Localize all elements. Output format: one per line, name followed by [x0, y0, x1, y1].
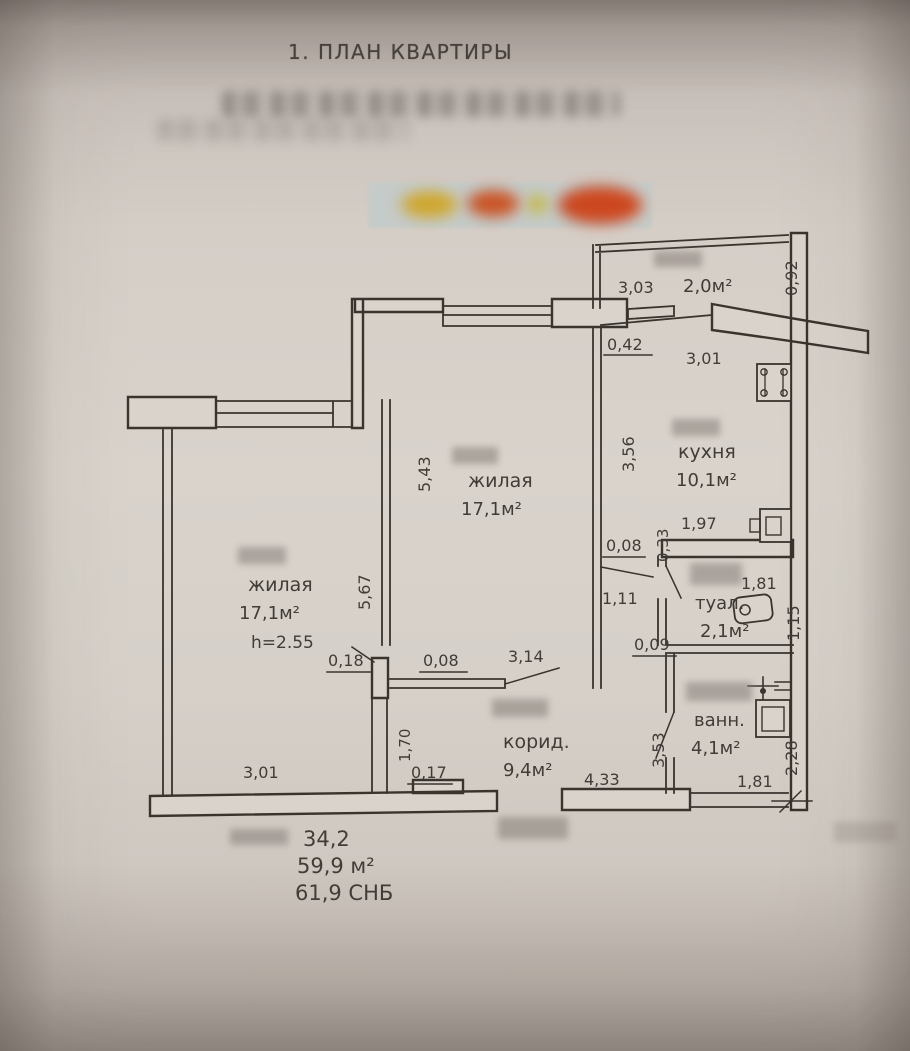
dim-008a: 0,08 [606, 536, 642, 555]
dim-bath-depth: 2,28 [782, 740, 801, 776]
smudge-corridor [492, 699, 548, 717]
totals-line-2: 59,9 м² [297, 854, 375, 878]
smudge-bottom-right [834, 822, 896, 842]
tap-dot [760, 688, 766, 694]
room-living-left-height: h=2.55 [251, 633, 314, 653]
tap-lines [748, 677, 791, 699]
walls [128, 233, 868, 816]
totals-line-1: 34,2 [303, 827, 350, 851]
smudge-totals [230, 829, 288, 845]
smudge-entrance [498, 817, 568, 839]
room-kitchen-name: кухня [678, 441, 736, 463]
room-living-left-name: жилая [248, 574, 313, 596]
dim-entry-width: 4,33 [584, 770, 620, 789]
smudge-living-mid [452, 447, 498, 464]
dim-008b: 0,08 [423, 651, 459, 670]
room-living-mid-area: 17,1м² [461, 499, 522, 520]
room-corridor-area: 9,4м² [503, 760, 552, 781]
dim-kitchen-height: 3,56 [619, 436, 638, 472]
dim-balcony-depth: 0,92 [782, 260, 801, 296]
smudge-toilet [690, 563, 742, 585]
dim-balcony-width: 3,03 [618, 278, 654, 297]
dim-bath-width: 1,81 [737, 772, 773, 791]
dim-017: 0,17 [411, 763, 447, 782]
smudge-balcony [654, 251, 702, 267]
washbasin-icon [756, 700, 790, 737]
room-toilet-name: туал. [695, 593, 744, 614]
dim-living-left-height: 5,67 [355, 574, 374, 610]
smudge-kitchen [672, 419, 720, 436]
room-balcony-area: 2,0м² [683, 276, 732, 297]
kitchen-sink-icon [750, 509, 791, 542]
smudge-living-left [238, 547, 286, 564]
sink-outer [760, 509, 791, 542]
room-living-mid-name: жилая [468, 470, 533, 492]
tap-icon [748, 677, 791, 699]
dim-111: 1,11 [602, 589, 638, 608]
dim-toilet-depth: 1,15 [784, 605, 803, 641]
dim-042: 0,42 [607, 335, 643, 354]
dimension-underlines [327, 355, 676, 784]
totals-line-3: 61,9 СНБ [295, 881, 393, 905]
room-bath-name: ванн. [694, 710, 745, 731]
room-corridor-name: корид. [503, 731, 570, 753]
dim-009: 0,09 [634, 635, 670, 654]
room-living-left-area: 17,1м² [239, 603, 300, 624]
dim-033: 0,33 [654, 529, 672, 562]
vent-shaft-icon [757, 364, 791, 401]
dim-197: 1,97 [681, 514, 717, 533]
scanned-floor-plan-page: 1. ПЛАН КВАРТИРЫ [0, 0, 910, 1051]
room-kitchen-area: 10,1м² [676, 470, 737, 491]
floor-plan-drawing: 3,03 2,0м² 0,92 0,42 3,01 кухня 10,1м² 3… [0, 0, 910, 1051]
dim-kitchen-width: 3,01 [686, 349, 722, 368]
dim-living-left-width: 3,01 [243, 763, 279, 782]
dim-living-mid-height: 5,43 [415, 456, 434, 492]
dim-018: 0,18 [328, 651, 364, 670]
dim-corridor-left: 1,70 [396, 729, 414, 762]
dim-corridor-width: 3,14 [508, 647, 544, 666]
dim-corridor-right: 3,53 [649, 732, 668, 768]
smudge-bath [686, 682, 752, 701]
dim-toilet-width: 1,81 [741, 574, 777, 593]
room-toilet-area: 2,1м² [700, 621, 749, 642]
sink-tap-box [750, 519, 760, 532]
room-bath-area: 4,1м² [691, 738, 740, 759]
